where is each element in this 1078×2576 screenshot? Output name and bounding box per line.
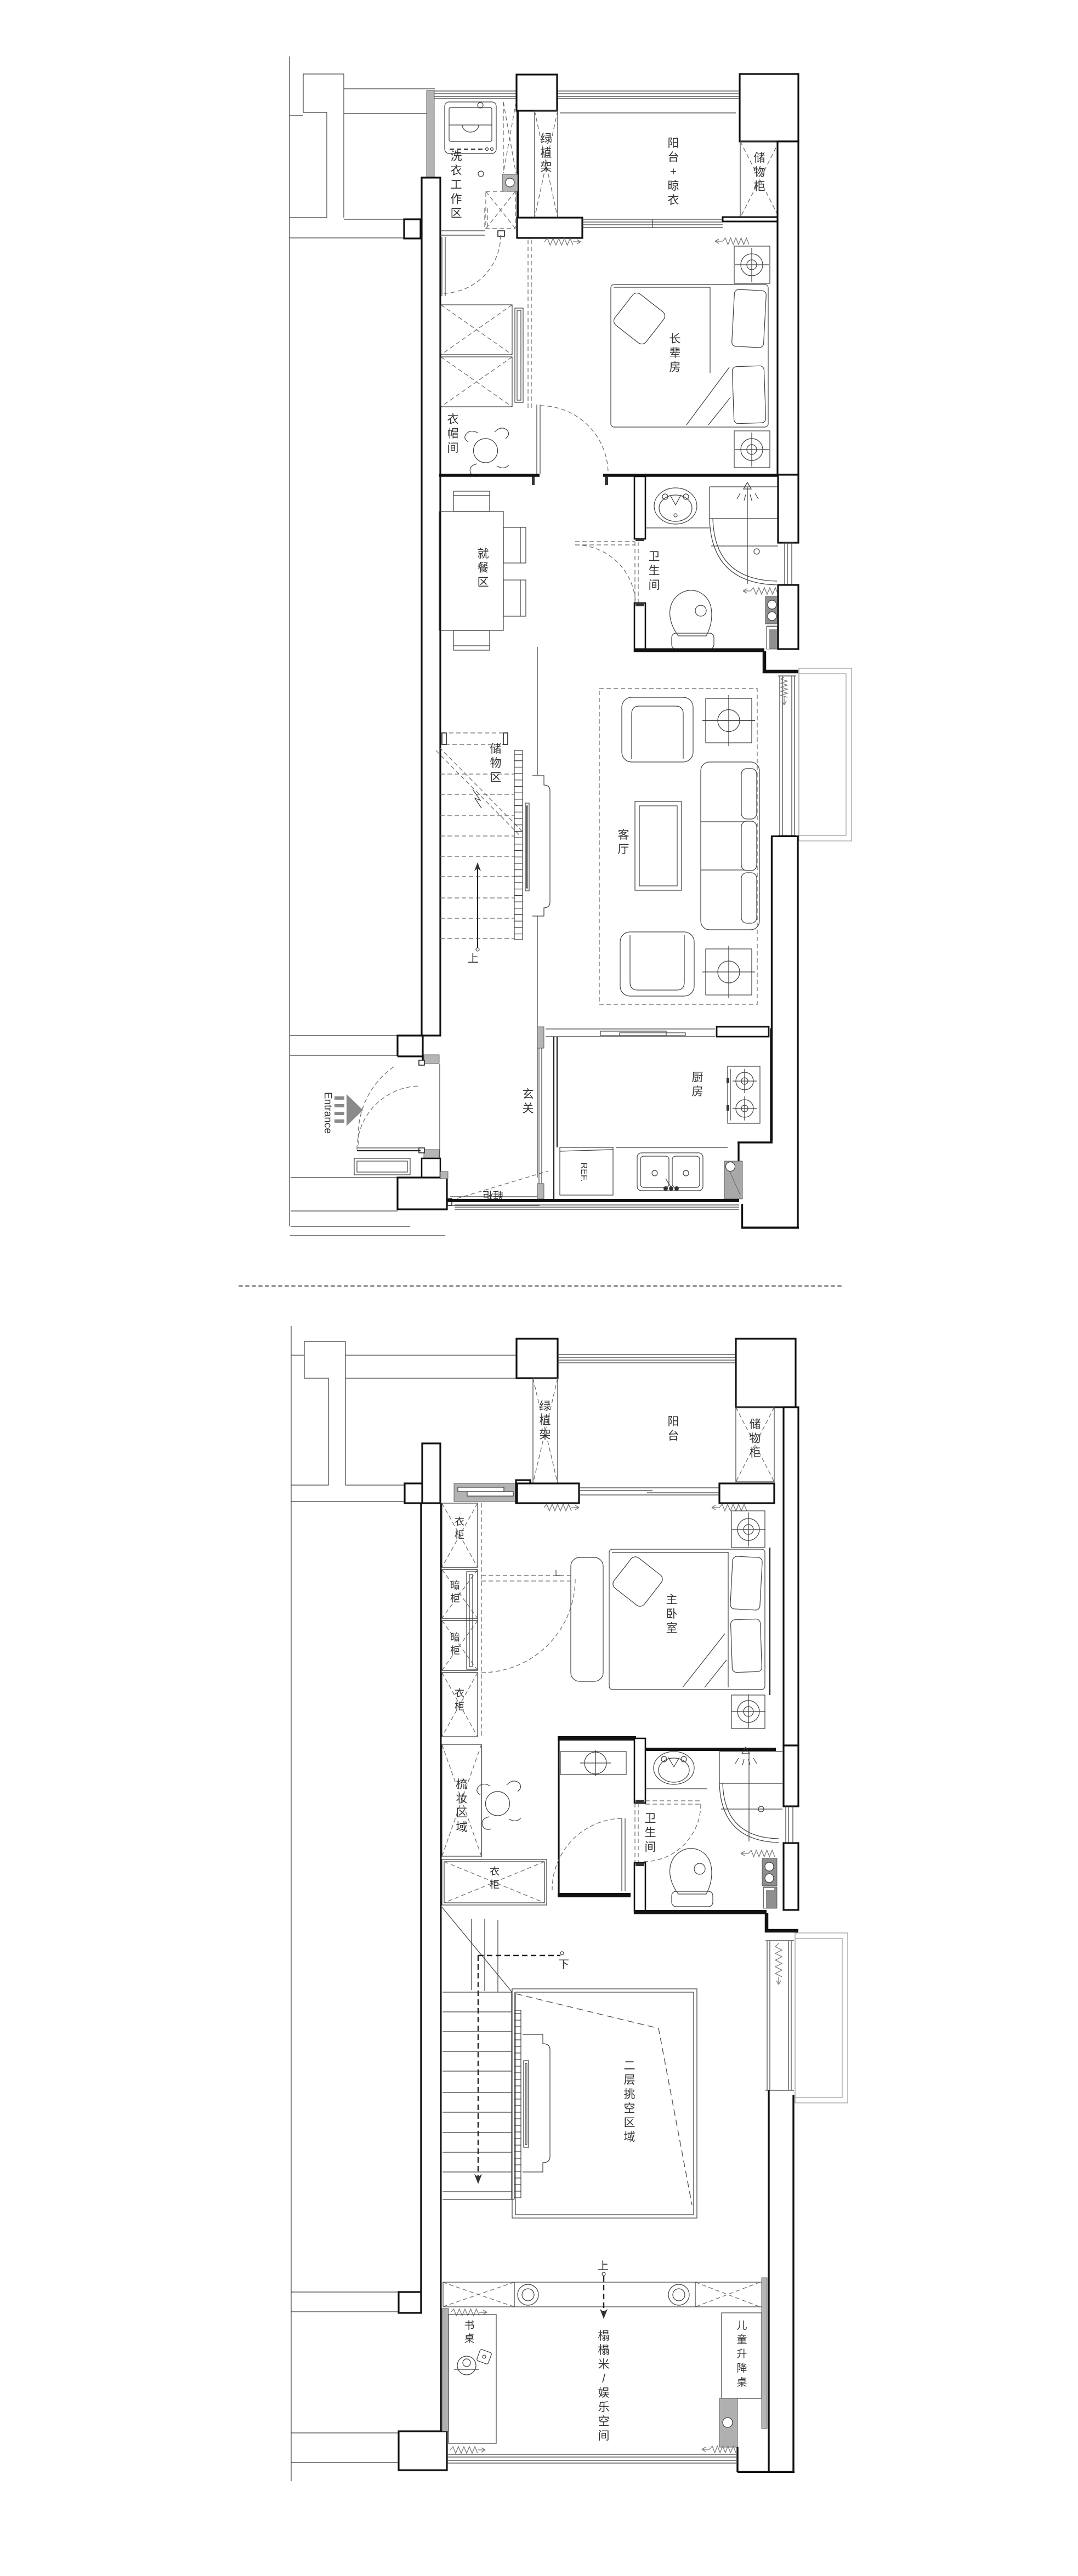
svg-text:下: 下 (558, 1959, 569, 1971)
svg-text:卫生间: 卫生间 (649, 550, 660, 592)
svg-text:储物柜: 储物柜 (750, 1418, 761, 1459)
svg-text:储物柜: 储物柜 (754, 152, 765, 193)
svg-text:衣帽间: 衣帽间 (447, 413, 459, 454)
svg-text:长辈房: 长辈房 (670, 333, 681, 374)
svg-text:卫生间: 卫生间 (645, 1812, 656, 1853)
svg-text:儿童升降桌: 儿童升降桌 (736, 2320, 747, 2389)
svg-text:主卧室: 主卧室 (666, 1594, 678, 1635)
svg-text:REF.: REF. (579, 1163, 588, 1182)
svg-text:就餐区: 就餐区 (478, 548, 489, 589)
svg-text:绿植架: 绿植架 (540, 1400, 551, 1441)
svg-text:绿植架: 绿植架 (541, 133, 552, 174)
svg-text:储物区: 储物区 (490, 743, 502, 784)
svg-text:洗衣工作区: 洗衣工作区 (451, 150, 462, 220)
svg-text:上: 上 (598, 2260, 609, 2272)
svg-text:Entrance: Entrance (322, 1092, 333, 1134)
svg-text:上: 上 (468, 952, 479, 965)
